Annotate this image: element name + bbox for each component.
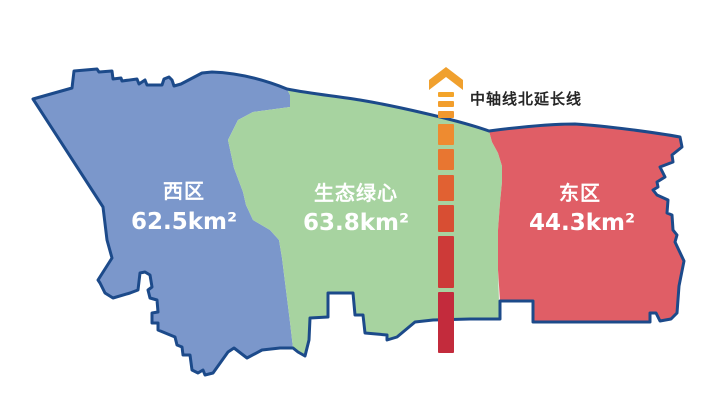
axis-dash-segment <box>438 292 454 353</box>
axis-dash-segment <box>438 205 454 232</box>
west-region-area: 62.5km² <box>131 209 237 235</box>
axis-dash-segment <box>438 149 454 170</box>
east-region-area: 44.3km² <box>529 210 635 236</box>
axis-dash-segment <box>438 175 454 201</box>
west-region-name: 西区 <box>163 179 205 203</box>
axis-dash-segment <box>438 92 454 97</box>
district-map: 西区 62.5km² 生态绿心 63.8km² 东区 44.3km² 中轴线北延… <box>0 0 718 407</box>
axis-dash-segment <box>438 101 454 107</box>
central-axis-label: 中轴线北延长线 <box>470 90 582 108</box>
axis-dash-segment <box>438 236 454 288</box>
map-canvas: 西区 62.5km² 生态绿心 63.8km² 东区 44.3km² 中轴线北延… <box>0 0 718 407</box>
axis-dash-segment <box>438 124 454 145</box>
axis-dash-segment <box>438 111 454 118</box>
north-arrow-icon <box>429 67 463 90</box>
center-region-name: 生态绿心 <box>314 181 398 205</box>
east-region-name: 东区 <box>559 181 601 205</box>
central-axis-dashed-line <box>438 92 454 353</box>
center-region-area: 63.8km² <box>303 210 409 236</box>
